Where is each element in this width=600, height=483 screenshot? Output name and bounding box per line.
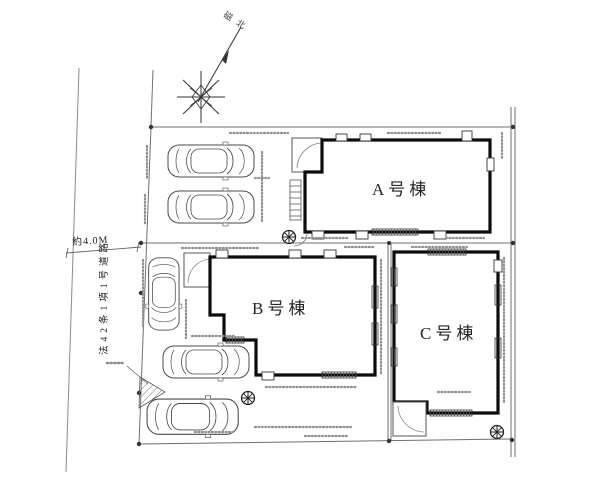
road-name-label: 法42条1項1号道路	[96, 245, 110, 355]
building-b-label: B号棟	[252, 294, 309, 319]
site-plan: 磁北 約4.0M 法42条1項1号道路 A号棟 B号棟 C号棟	[0, 0, 600, 483]
building-a-label: A号棟	[372, 175, 430, 200]
road-left-edge	[66, 68, 79, 472]
building-c-label: C号棟	[420, 319, 477, 344]
compass-north-icon	[177, 27, 241, 123]
